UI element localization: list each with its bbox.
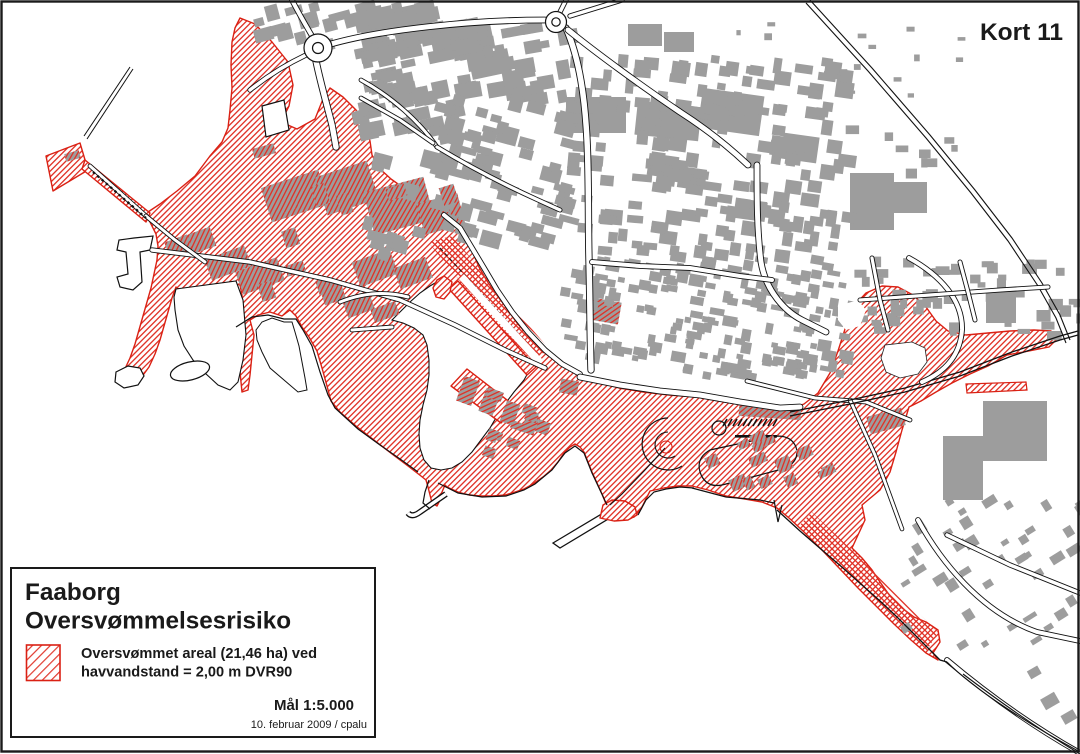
- svg-text:havvandstand = 2,00 m DVR90: havvandstand = 2,00 m DVR90: [81, 665, 292, 681]
- svg-text:Mål 1:5.000: Mål 1:5.000: [274, 697, 354, 714]
- svg-text:10. februar 2009 / cpalu: 10. februar 2009 / cpalu: [251, 719, 367, 731]
- svg-text:Oversvømmet areal (21,46 ha) v: Oversvømmet areal (21,46 ha) ved: [81, 646, 317, 662]
- svg-text:Kort 11: Kort 11: [980, 19, 1063, 46]
- svg-text:Faaborg: Faaborg: [25, 579, 121, 606]
- svg-text:Oversvømmelsesrisiko: Oversvømmelsesrisiko: [25, 608, 291, 635]
